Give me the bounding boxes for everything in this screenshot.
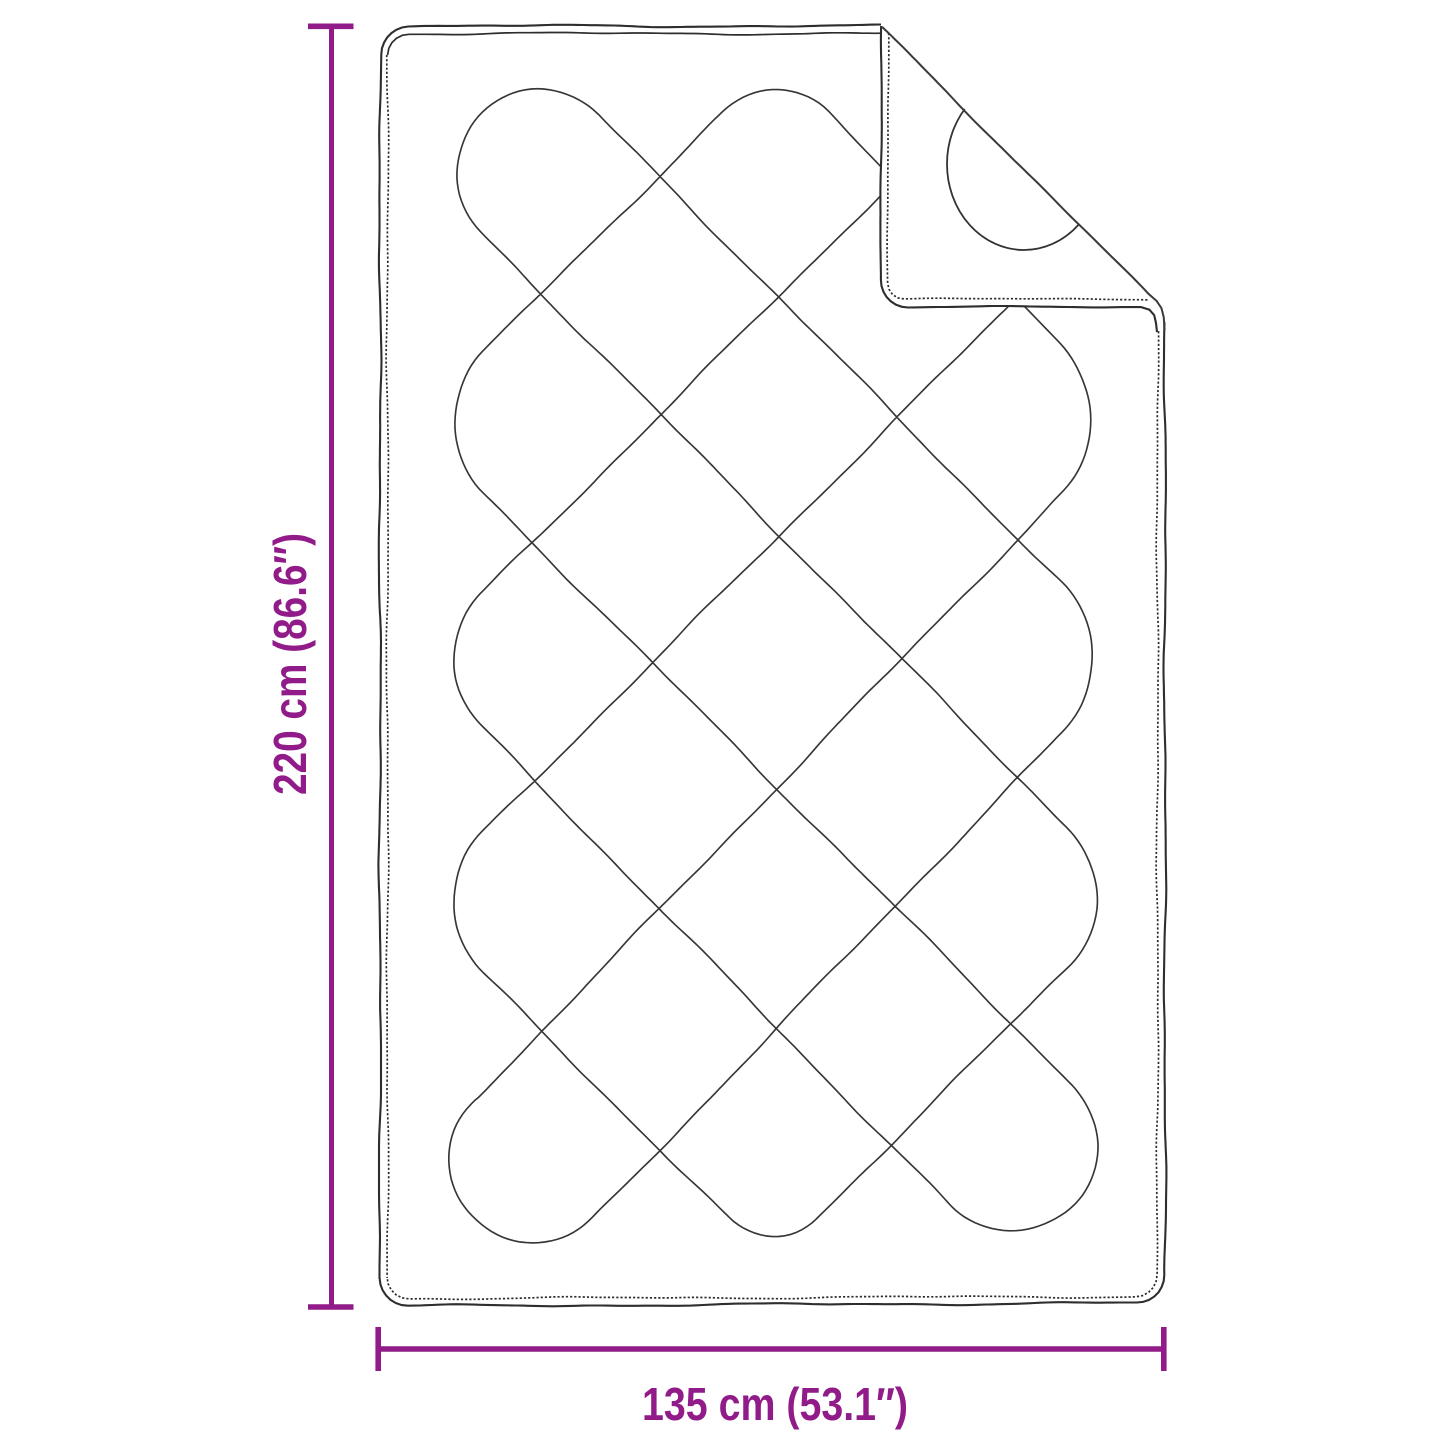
svg-text:135 cm (53.1″): 135 cm (53.1″) bbox=[642, 1378, 908, 1430]
svg-text:220 cm (86.6″): 220 cm (86.6″) bbox=[264, 533, 316, 795]
